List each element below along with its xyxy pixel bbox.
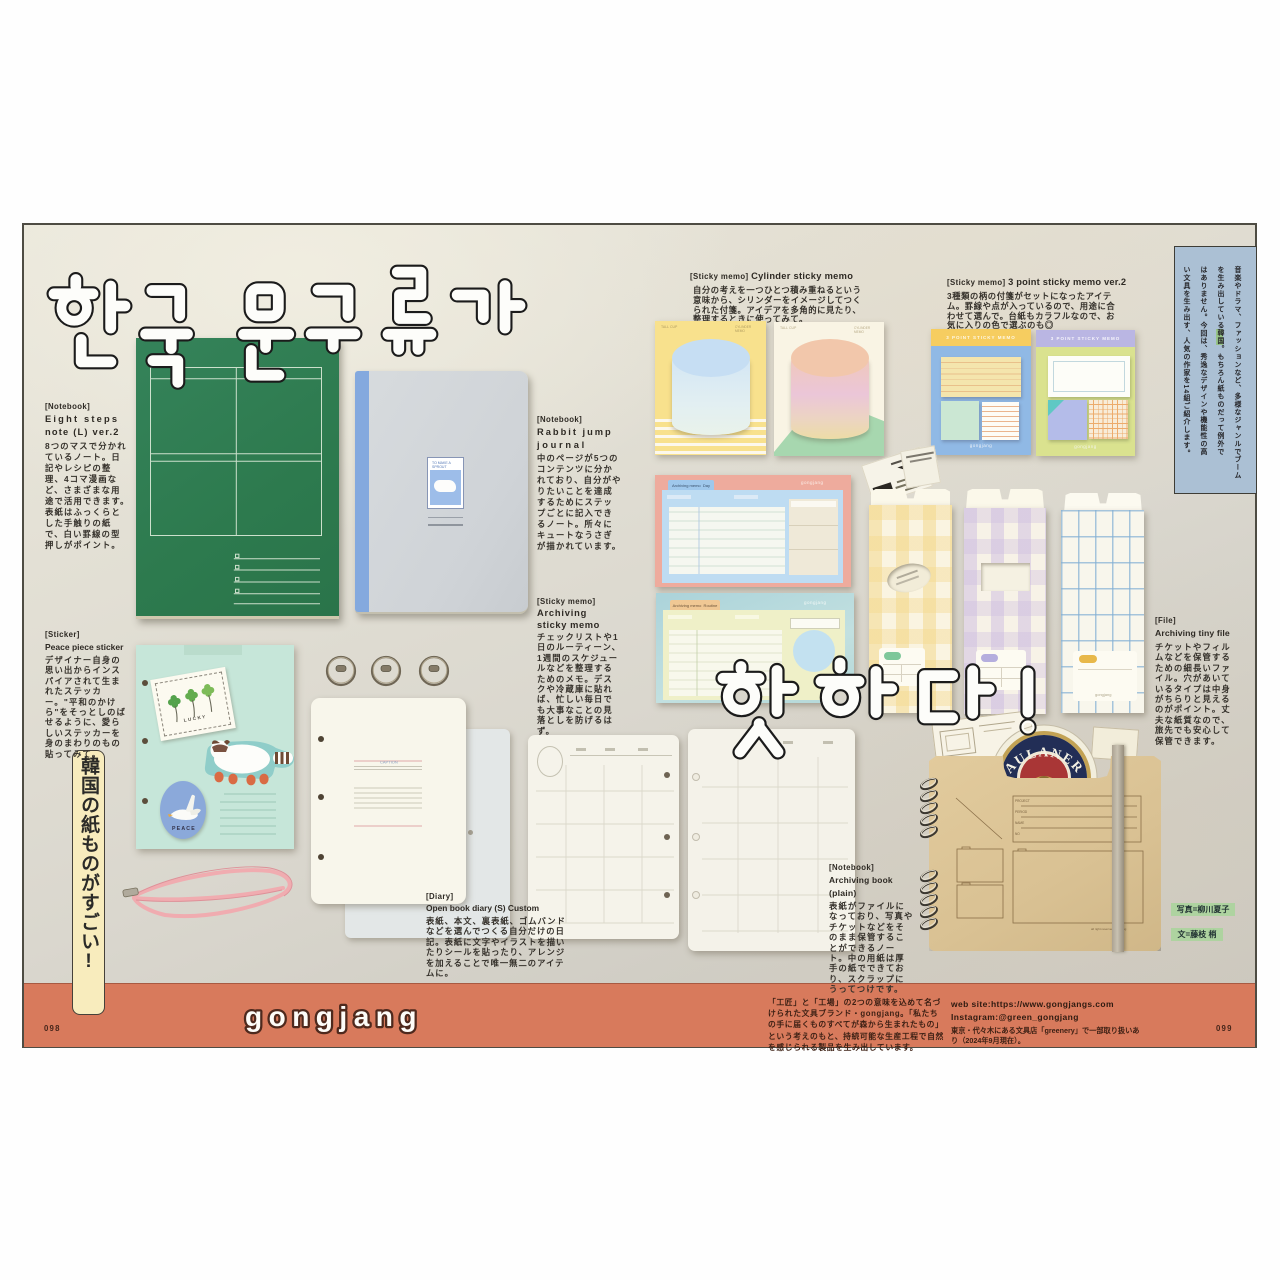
svg-text:PERIOD: PERIOD	[1015, 810, 1028, 814]
svg-text:PEACE: PEACE	[172, 826, 196, 832]
svg-text:NAME: NAME	[1015, 821, 1024, 825]
svg-text:NO: NO	[1015, 832, 1020, 836]
svg-text:PROJECT: PROJECT	[1015, 799, 1030, 803]
svg-text:CAPTION: CAPTION	[380, 760, 398, 765]
svg-text:gongjang: gongjang	[245, 1001, 423, 1032]
